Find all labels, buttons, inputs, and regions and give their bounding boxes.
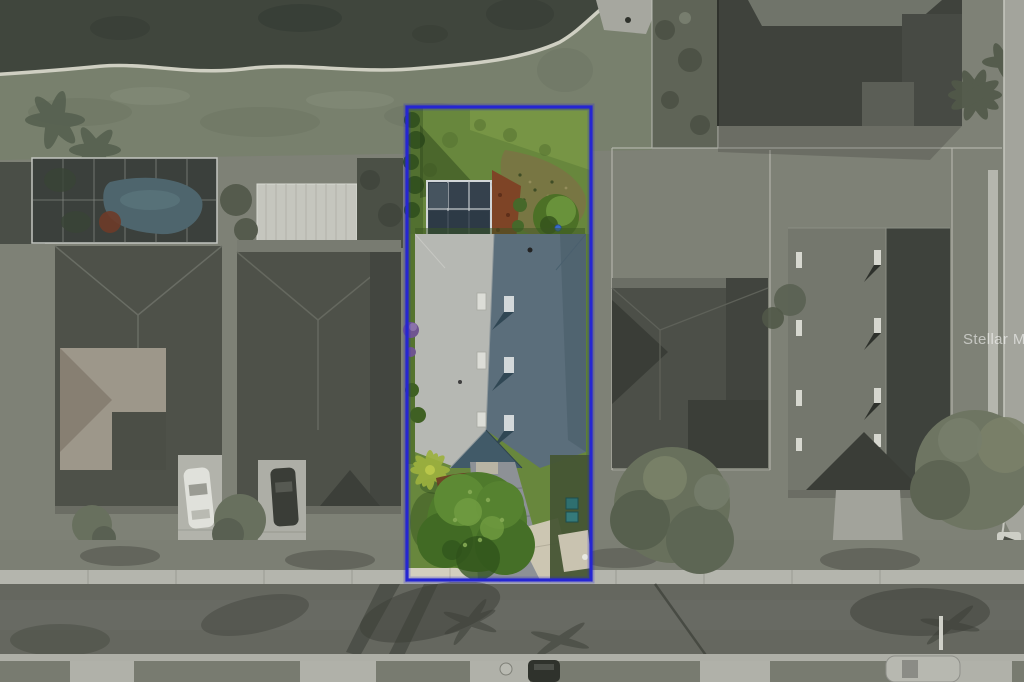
roof-sunlit-face [415, 234, 494, 466]
dark-car [270, 467, 299, 527]
far-curb-strip [0, 654, 1024, 682]
parked-dark-car [528, 660, 560, 682]
watermark: Stellar MLS [963, 331, 1024, 348]
utility-unit-2 [566, 512, 578, 522]
side-yard-right [550, 455, 592, 580]
neighbor-house-right-1 [612, 278, 768, 468]
neighbor-pool-enclosure [0, 158, 217, 244]
road-paint-mark [939, 616, 943, 650]
aerial-property-photo: Stellar MLS [0, 0, 1024, 682]
scrub-strip [652, 0, 718, 148]
manhole-cover [500, 663, 512, 675]
neighbor-house-top-right [718, 0, 962, 160]
highlighted-property [403, 107, 592, 582]
pole [625, 17, 631, 23]
mailbox [582, 554, 588, 560]
lot-house-roof [415, 228, 586, 468]
parked-gray-car [886, 656, 960, 682]
utility-unit-1 [566, 498, 578, 509]
